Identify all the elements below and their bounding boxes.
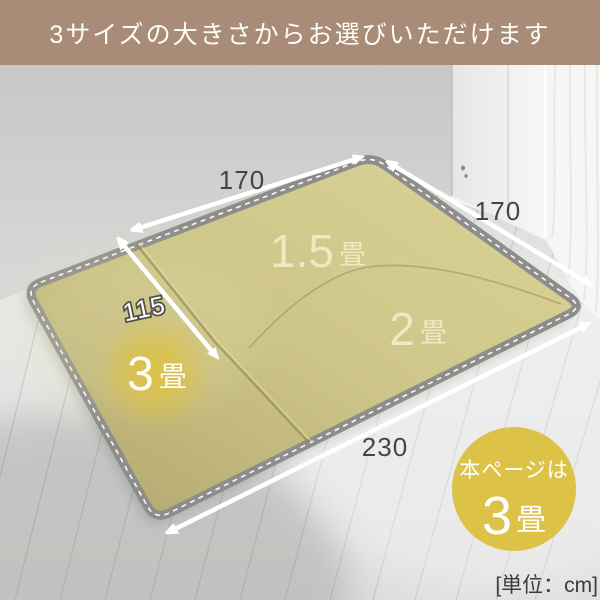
mat-label-2jo-num: 2: [389, 303, 415, 355]
mat-label-3jo-unit: 畳: [159, 361, 187, 392]
badge-size-num: 3: [482, 486, 512, 546]
mat-label-1-5jo-unit: 畳: [339, 240, 366, 270]
mat-label-3jo-num: 3: [127, 348, 154, 401]
dim-label-170-right: 170: [475, 196, 521, 226]
wall-outlet-dot: [461, 166, 465, 171]
unit-note: [単位：cm]: [495, 574, 598, 597]
current-size-badge: [452, 427, 576, 551]
mat-label-1-5jo-num: 1.5: [270, 225, 334, 277]
mat-label-2jo-unit: 畳: [420, 318, 447, 348]
badge-line1: 本ページは: [459, 459, 569, 482]
dim-label-170-top-left: 170: [219, 165, 265, 195]
dim-label-230-front: 230: [362, 432, 408, 462]
badge-size-unit: 畳: [516, 504, 546, 537]
room-photo: 170 170 115 230 1.5畳 2畳 3畳 本ページは 3畳 [単位：…: [0, 0, 600, 600]
product-size-image: 3サイズの大きさからお選びいただけます: [0, 0, 600, 600]
wall-outlet-dot: [464, 174, 467, 178]
